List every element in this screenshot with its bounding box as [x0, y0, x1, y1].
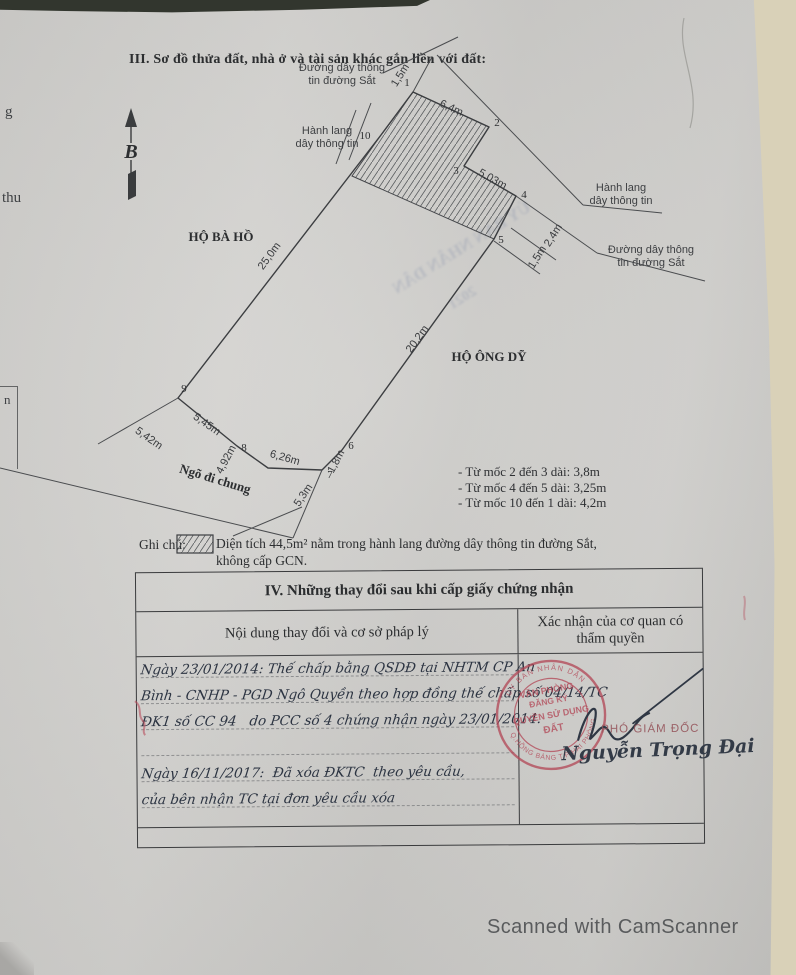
dimension-label: 5,3m: [292, 482, 316, 509]
changes-table: IV. Những thay đổi sau khi cấp giấy chứn…: [135, 568, 705, 848]
vertex-number: 2: [494, 117, 500, 129]
north-label: B: [123, 141, 137, 163]
dimension-label: 5,45m: [191, 411, 223, 438]
corridor-hatched-area: [352, 92, 516, 239]
paper-crease-artifact: [682, 18, 693, 128]
col-header-content: Nội dung thay đổi và cơ sở pháp lý: [136, 609, 518, 656]
vertex-number: 10: [360, 130, 372, 142]
corridor-label: Hành lang: [302, 125, 352, 137]
corridor-label: dây thông tin: [296, 138, 359, 150]
reference-line: [383, 37, 458, 73]
legend-text-line2: không cấp GCN.: [216, 553, 307, 569]
dimension-label: 2,4m: [542, 222, 565, 249]
corridor-label: dây thông tin: [590, 195, 653, 207]
vertex-number: 4: [521, 189, 527, 201]
reference-line: [413, 57, 432, 92]
reference-line: [0, 468, 293, 538]
hatch-swatch: [176, 534, 214, 554]
red-mark-artifact: [744, 596, 745, 620]
corridor-label: Đường dây thông: [299, 62, 385, 74]
camscanner-watermark: Scanned with CamScanner: [487, 916, 739, 939]
vertex-number: 5: [498, 234, 504, 246]
scanned-land-certificate-page: g thu n ỦY BAN NHÂN DÂN 2021 III. Sơ đồ …: [0, 0, 796, 975]
reference-line: [336, 110, 356, 164]
table-header-row: Nội dung thay đổi và cơ sở pháp lý Xác n…: [136, 608, 702, 657]
neighbor-label: HỘ BÀ HỒ: [188, 229, 253, 244]
signer-title: PHÓ GIÁM ĐỐC: [601, 723, 699, 736]
distance-notes: - Từ mốc 2 đến 3 dài: 3,8m- Từ mốc 4 đến…: [458, 464, 606, 511]
table-title: IV. Những thay đổi sau khi cấp giấy chứn…: [136, 569, 702, 612]
corridor-label: Đường dây thông: [608, 244, 694, 256]
note-line: - Từ mốc 4 đến 5 dài: 3,25m: [458, 480, 606, 496]
north-arrow-feather: [128, 170, 136, 200]
vertex-number: 9: [181, 383, 187, 395]
vertex-number: 6: [348, 440, 354, 452]
dimension-label: 1,8m: [325, 448, 347, 475]
note-line: - Từ mốc 2 đến 3 dài: 3,8m: [458, 464, 606, 480]
neighbor-label: HỘ ÔNG DỸ: [451, 349, 527, 364]
north-arrow-head: [125, 108, 137, 127]
vertex-number: 3: [453, 165, 459, 177]
corridor-label: Hành lang: [596, 182, 646, 194]
legend-text-line1: Diện tích 44,5m² nằm trong hành lang đườ…: [216, 536, 597, 552]
dimension-label: 6,26m: [268, 448, 301, 468]
vertex-number: 8: [241, 442, 247, 454]
empty-bottom-row: [138, 823, 704, 848]
table-body: Ngày 23/01/2014: Thế chấp bằng QSDĐ tại …: [137, 653, 704, 827]
note-line: - Từ mốc 10 đến 1 dài: 4,2m: [458, 495, 606, 511]
dimension-label: 1,5m: [526, 244, 549, 271]
dimension-label: 20,2m: [404, 323, 432, 355]
corridor-label: tin đường Sắt: [308, 74, 375, 87]
dimension-label: 5,42m: [133, 425, 165, 452]
corridor-label: tin đường Sắt: [617, 256, 684, 269]
